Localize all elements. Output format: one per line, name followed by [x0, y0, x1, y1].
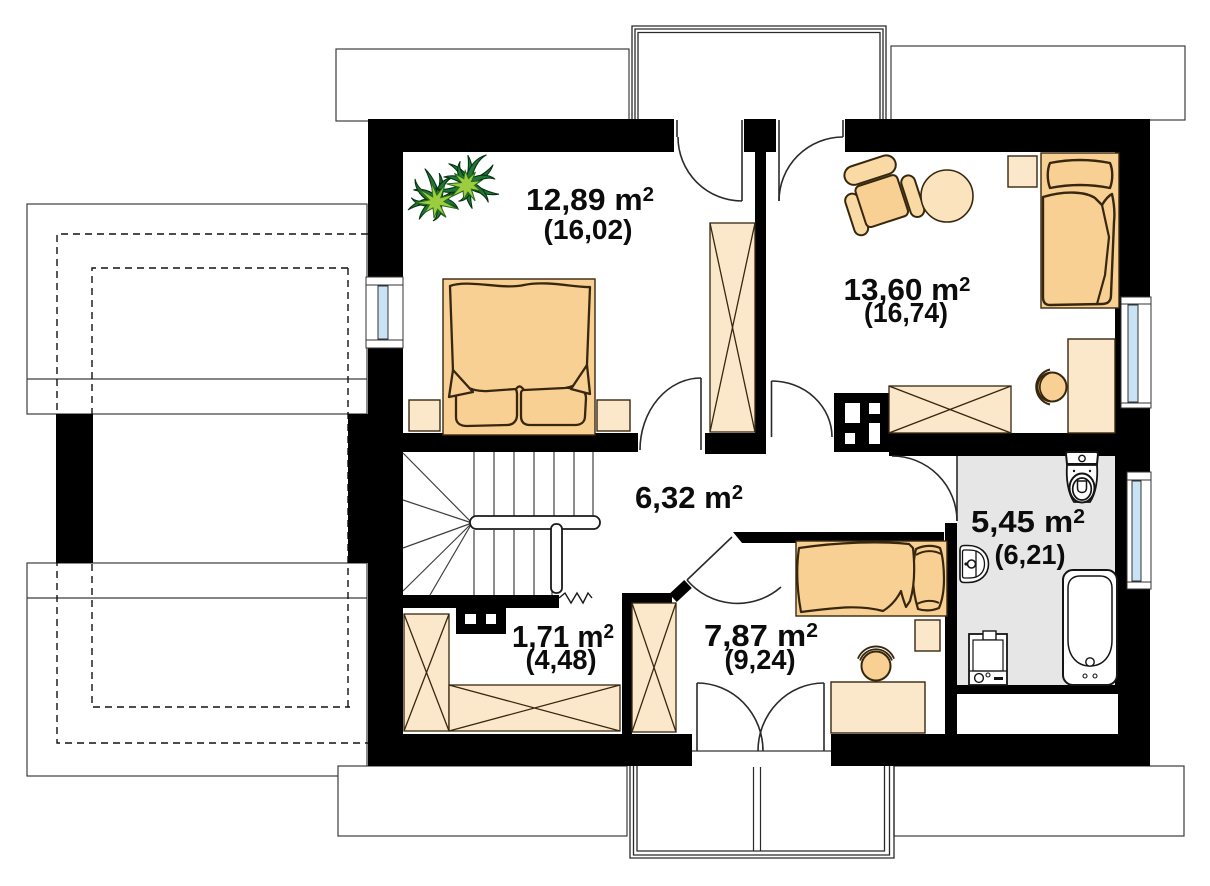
- svg-text:5,45 m2: 5,45 m2: [971, 504, 1085, 539]
- svg-text:6,32 m2: 6,32 m2: [635, 480, 743, 515]
- svg-text:(16,02): (16,02): [544, 214, 633, 245]
- svg-text:12,89 m2: 12,89 m2: [526, 182, 654, 217]
- svg-text:(9,24): (9,24): [725, 644, 796, 675]
- svg-text:(6,21): (6,21): [995, 539, 1066, 570]
- svg-text:(4,48): (4,48): [526, 644, 597, 675]
- svg-text:(16,74): (16,74): [864, 297, 948, 328]
